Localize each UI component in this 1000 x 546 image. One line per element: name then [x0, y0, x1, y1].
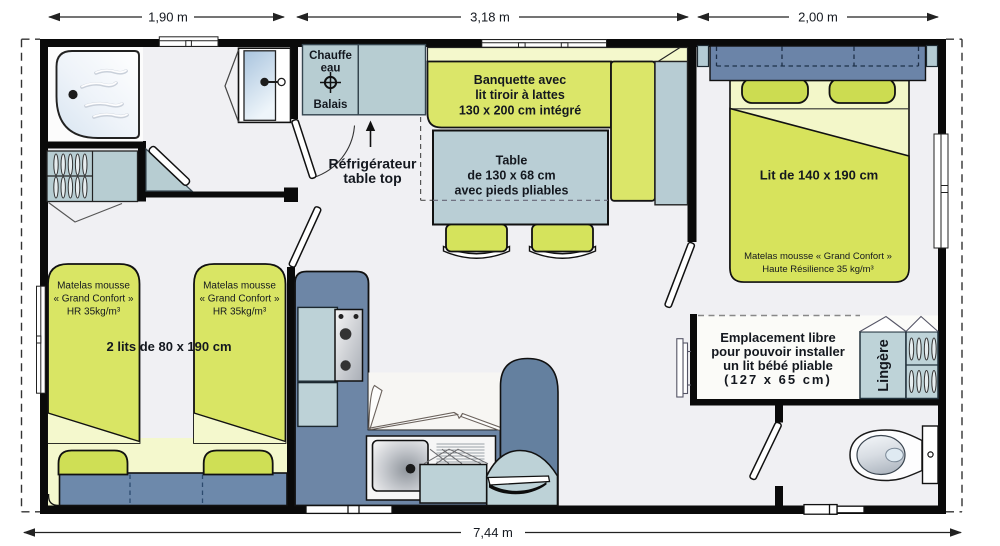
svg-text:Matelas mousse: Matelas mousse: [57, 281, 130, 292]
svg-text:pour pouvoir installer: pour pouvoir installer: [711, 344, 845, 359]
svg-text:(127 x 65 cm): (127 x 65 cm): [724, 372, 832, 387]
svg-text:2 lits de 80 x 190 cm: 2 lits de 80 x 190 cm: [106, 339, 231, 354]
svg-text:Banquette avec: Banquette avec: [474, 73, 566, 87]
svg-text:« Grand Confort »: « Grand Confort »: [199, 294, 279, 305]
svg-text:1,90 m: 1,90 m: [148, 10, 188, 25]
svg-text:HR 35kg/m³: HR 35kg/m³: [213, 307, 267, 318]
svg-text:2,00 m: 2,00 m: [798, 10, 838, 25]
svg-text:Lit de 140 x 190 cm: Lit de 140 x 190 cm: [760, 168, 879, 183]
svg-text:« Grand Confort »: « Grand Confort »: [53, 294, 133, 305]
svg-text:7,44 m: 7,44 m: [473, 525, 513, 540]
svg-text:de 130 x 68 cm: de 130 x 68 cm: [467, 169, 555, 183]
svg-text:Emplacement libre: Emplacement libre: [720, 330, 836, 345]
svg-text:un lit bébé pliable: un lit bébé pliable: [723, 358, 833, 373]
svg-text:Balais: Balais: [314, 99, 348, 111]
svg-text:Haute Résilience 35 kg/m³: Haute Résilience 35 kg/m³: [762, 264, 873, 275]
svg-text:Matelas mousse: Matelas mousse: [203, 281, 276, 292]
svg-text:HR 35kg/m³: HR 35kg/m³: [67, 307, 121, 318]
svg-text:avec pieds pliables: avec pieds pliables: [455, 184, 569, 198]
svg-text:Table: Table: [496, 154, 528, 168]
svg-text:Lingère: Lingère: [876, 339, 892, 391]
svg-text:Chauffe: Chauffe: [309, 50, 352, 62]
svg-text:Matelas mousse « Grand Confort: Matelas mousse « Grand Confort »: [744, 251, 892, 262]
svg-text:3,18 m: 3,18 m: [470, 10, 510, 25]
svg-text:table top: table top: [343, 170, 401, 186]
svg-text:130 x 200 cm intégré: 130 x 200 cm intégré: [459, 103, 581, 117]
svg-text:lit tiroir à lattes: lit tiroir à lattes: [475, 88, 565, 102]
